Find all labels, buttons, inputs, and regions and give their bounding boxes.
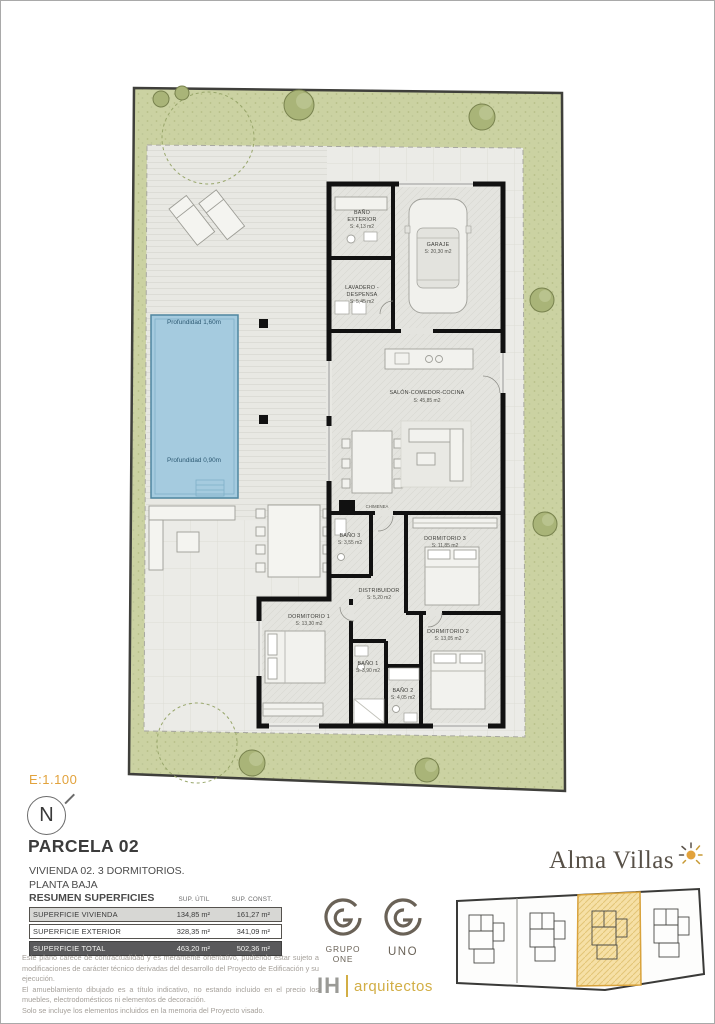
ih-arquitectos-logo: IH arquitectos: [317, 973, 433, 999]
sun-icon: [675, 838, 703, 866]
grupo-one-label: GRUPO ONE: [319, 945, 367, 964]
page-title: PARCELA 02: [28, 836, 139, 857]
svg-text:S: 4,13 m2: S: 4,13 m2: [350, 224, 374, 230]
alma-villas-text: Alma Villas: [549, 847, 674, 875]
car-icon: [405, 199, 471, 313]
disclaimer-text: Este plano carece de contractualidad y e…: [22, 953, 319, 1016]
uno-logo-icon: [383, 898, 423, 938]
subtitle-line-1: VIVIENDA 02. 3 DORMITORIOS.: [29, 864, 185, 878]
svg-text:S: 20,30 m2: S: 20,30 m2: [425, 249, 452, 255]
ih-logo-subtext: arquitectos: [354, 978, 433, 995]
svg-text:S: 45,85 m2: S: 45,85 m2: [414, 398, 441, 404]
room-label-bano1: BAÑO 1: [358, 660, 379, 667]
north-letter: N: [39, 804, 53, 827]
svg-text:S: 11,85 m2: S: 11,85 m2: [432, 543, 459, 549]
room-label-lavadero: LAVADERO -: [345, 285, 379, 291]
room-label-dormitorio2: DORMITORIO 2: [427, 629, 469, 635]
grupo-one-logo: GRUPO ONE: [319, 898, 367, 964]
room-label-dormitorio3: DORMITORIO 3: [424, 536, 466, 542]
pool-depth-top-label: Profundidad 1,60m: [167, 319, 221, 326]
summary-table: RESUMEN SUPERFICIES SUP. ÚTIL SUP. CONST…: [29, 892, 282, 956]
svg-text:S: 3,55 m2: S: 3,55 m2: [338, 540, 362, 546]
pergola-column: [259, 319, 268, 328]
svg-text:S: 13,30 m2: S: 13,30 m2: [296, 621, 323, 627]
room-label-chimenea: CHIMENEA: [366, 504, 389, 509]
grupo-one-logo-icon: [323, 898, 363, 938]
uno-logo: UNO: [379, 898, 427, 959]
highlighted-parcel: [577, 892, 641, 986]
col-header-sup-const: SUP. CONST.: [222, 896, 282, 903]
svg-text:S: 3,90 m2: S: 3,90 m2: [356, 668, 380, 674]
svg-text:EXTERIOR: EXTERIOR: [347, 217, 376, 223]
table-row: SUPERFICIE EXTERIOR 328,35 m² 341,09 m²: [29, 924, 282, 939]
floor-plan-drawing: Profundidad 1,60m Profundidad 0,90m: [1, 1, 715, 801]
pool-depth-bottom-label: Profundidad 0,90m: [167, 457, 221, 464]
svg-text:S: 5,45 m2: S: 5,45 m2: [350, 299, 374, 305]
subtitle-line-2: PLANTA BAJA: [29, 878, 185, 892]
svg-text:S: 4,05 m2: S: 4,05 m2: [391, 695, 415, 701]
pergola-column: [259, 415, 268, 424]
ih-logo-divider: [346, 975, 348, 997]
col-header-sup-util: SUP. ÚTIL: [166, 896, 222, 903]
room-label-dormitorio1: DORMITORIO 1: [288, 614, 330, 620]
plan-subtitle: VIVIENDA 02. 3 DORMITORIOS. PLANTA BAJA: [29, 864, 185, 892]
room-label-bano-exterior: BAÑO: [354, 209, 370, 216]
room-label-salon: SALÓN-COMEDOR-COCINA: [390, 389, 465, 396]
plan-sheet: Profundidad 1,60m Profundidad 0,90m: [0, 0, 715, 1024]
north-arrow: N: [27, 796, 66, 835]
uno-label: UNO: [379, 946, 427, 959]
svg-text:DESPENSA: DESPENSA: [347, 292, 378, 298]
ih-logo-text: IH: [317, 973, 341, 999]
room-label-distribuidor: DISTRIBUIDOR: [358, 588, 399, 594]
alma-villas-logo: Alma Villas: [549, 847, 703, 875]
room-label-garaje: GARAJE: [427, 242, 450, 248]
room-label-bano3: BAÑO 3: [340, 532, 361, 539]
room-label-bano2: BAÑO 2: [393, 687, 414, 694]
svg-text:S: 13,05 m2: S: 13,05 m2: [435, 636, 462, 642]
summary-table-title: RESUMEN SUPERFICIES: [29, 892, 166, 904]
swimming-pool: Profundidad 1,60m Profundidad 0,90m: [151, 315, 238, 498]
table-row: SUPERFICIE VIVIENDA 134,85 m² 161,27 m²: [29, 907, 282, 922]
fireplace: [339, 500, 355, 513]
svg-text:S: 5,20 m2: S: 5,20 m2: [367, 595, 391, 601]
scale-label: E:1.100: [29, 772, 77, 787]
key-plan: [453, 885, 709, 1007]
